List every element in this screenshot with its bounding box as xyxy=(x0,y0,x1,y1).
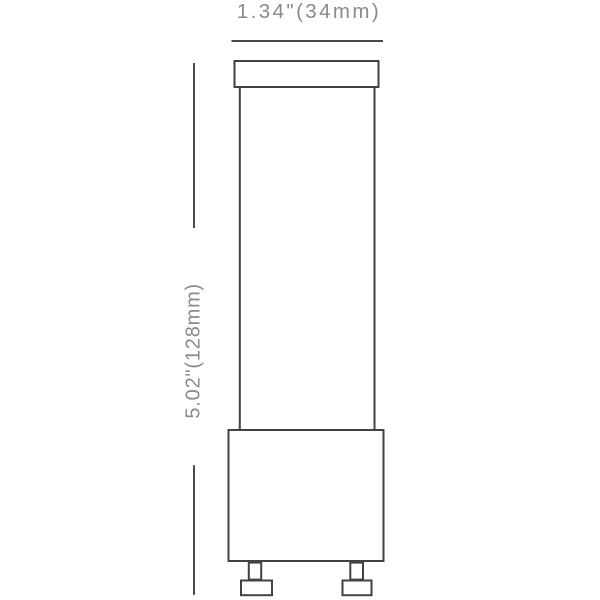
svg-text:5.02"(128mm): 5.02"(128mm) xyxy=(183,283,205,419)
svg-text:1.34"(34mm): 1.34"(34mm) xyxy=(237,0,381,23)
